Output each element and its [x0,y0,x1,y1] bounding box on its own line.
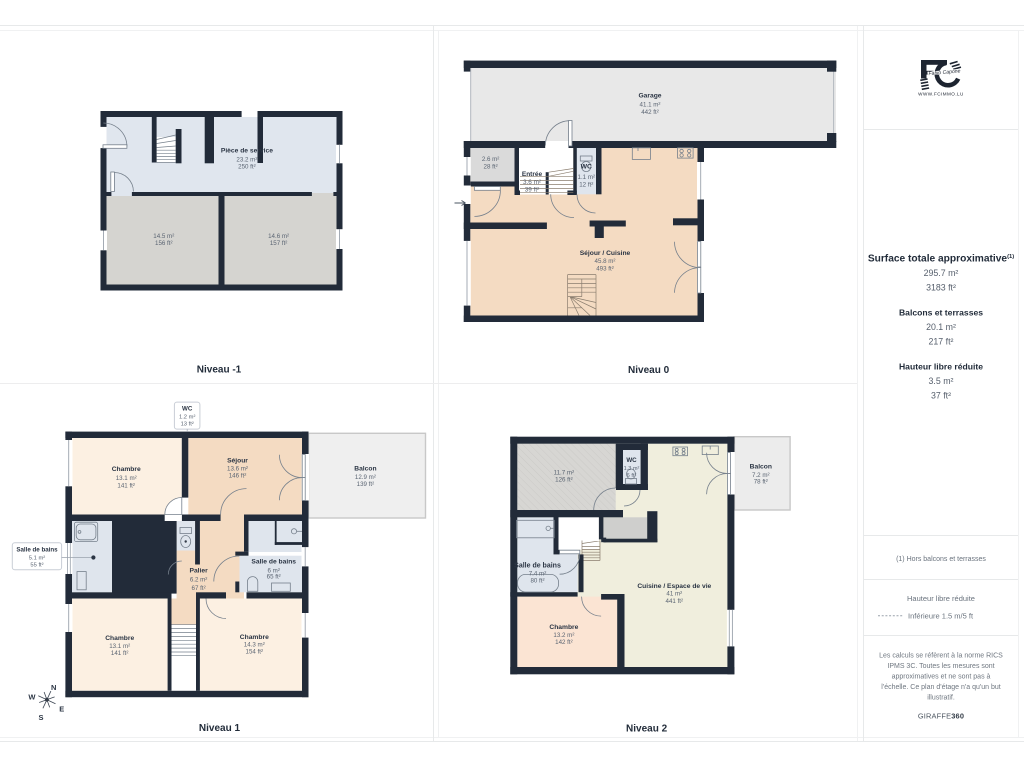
svg-text:14.3 m²: 14.3 m² [244,642,265,649]
svg-text:12 ft²: 12 ft² [579,182,593,189]
svg-text:illustratif.: illustratif. [927,695,955,702]
svg-text:13.6 m²: 13.6 m² [227,466,248,473]
svg-text:142 ft²: 142 ft² [555,639,573,646]
svg-text:Salle de bains: Salle de bains [16,546,58,553]
svg-text:Niveau 2: Niveau 2 [626,723,668,734]
svg-text:55 ft²: 55 ft² [30,562,43,568]
svg-text:Chambre: Chambre [112,466,141,473]
svg-text:Garage: Garage [638,93,661,100]
svg-text:3183 ft²: 3183 ft² [926,282,956,292]
svg-text:WC: WC [581,164,592,171]
svg-text:Balcon: Balcon [354,466,376,473]
svg-text:Palier: Palier [189,568,208,575]
svg-text:156 ft²: 156 ft² [155,240,173,247]
svg-text:78 ft²: 78 ft² [754,478,768,485]
svg-text:41 m²: 41 m² [666,591,682,598]
svg-text:Chambre: Chambre [105,635,134,642]
svg-text:126 ft²: 126 ft² [555,477,573,484]
svg-text:157 ft²: 157 ft² [270,240,288,247]
svg-text:250 ft²: 250 ft² [238,164,256,171]
svg-text:45.8 m²: 45.8 m² [595,258,616,265]
svg-text:Hauteur libre réduite: Hauteur libre réduite [907,594,975,603]
svg-text:Salle de bains: Salle de bains [514,562,561,569]
svg-text:65 ft²: 65 ft² [267,573,281,580]
svg-text:GIRAFFE360: GIRAFFE360 [918,712,964,721]
svg-text:141 ft²: 141 ft² [111,650,129,657]
svg-text:80 ft²: 80 ft² [530,578,544,585]
svg-text:37 ft²: 37 ft² [931,391,951,401]
svg-text:IPMS 3C. Toutes les mesures so: IPMS 3C. Toutes les mesures sont [887,663,994,670]
svg-text:WC: WC [182,406,193,413]
svg-text:146 ft²: 146 ft² [229,473,247,480]
svg-text:Chambre: Chambre [549,624,578,631]
svg-text:Balcon: Balcon [750,464,772,471]
svg-text:6.2 m²: 6.2 m² [190,577,208,584]
svg-text:Cuisine / Espace de vie: Cuisine / Espace de vie [637,583,711,590]
svg-text:6 ft²: 6 ft² [627,473,637,479]
svg-text:139 ft²: 139 ft² [357,481,375,488]
svg-text:7.4 m²: 7.4 m² [529,570,547,577]
svg-text:E: E [59,704,64,713]
svg-text:67 ft²: 67 ft² [192,585,206,592]
svg-text:Niveau 0: Niveau 0 [628,365,670,376]
svg-text:W: W [28,692,36,701]
svg-text:Niveau -1: Niveau -1 [197,365,242,376]
svg-text:Chambre: Chambre [240,634,269,641]
svg-text:39 ft²: 39 ft² [525,187,540,194]
svg-text:3.6 m²: 3.6 m² [523,179,541,186]
svg-text:Séjour / Cuisine: Séjour / Cuisine [580,250,631,257]
svg-text:14.6 m²: 14.6 m² [268,233,289,240]
svg-text:1.3 m²: 1.3 m² [624,466,640,472]
svg-text:14.5 m²: 14.5 m² [153,233,174,240]
svg-text:20.1 m²: 20.1 m² [926,322,956,332]
svg-text:Pièce de service: Pièce de service [221,148,273,155]
svg-text:Surface totale approximative(1: Surface totale approximative(1) [868,253,1014,264]
svg-text:3.5 m²: 3.5 m² [929,376,954,386]
svg-text:1.1 m²: 1.1 m² [578,174,596,181]
svg-text:Salle de bains: Salle de bains [251,559,296,566]
svg-text:(1) Hors balcons et terrasses: (1) Hors balcons et terrasses [896,556,986,563]
svg-text:Entrée: Entrée [522,171,543,178]
svg-text:442 ft²: 442 ft² [641,109,659,116]
svg-text:WC: WC [626,457,637,464]
svg-text:23.2 m²: 23.2 m² [236,157,257,164]
svg-text:Balcons et terrasses: Balcons et terrasses [899,308,983,318]
svg-text:13 ft²: 13 ft² [181,422,194,428]
svg-text:141 ft²: 141 ft² [117,483,135,490]
svg-text:N: N [51,683,56,692]
svg-text:S: S [38,713,43,722]
svg-text:l'échelle. Ce plan d'étage n'a: l'échelle. Ce plan d'étage n'a qu'un but [881,684,1000,691]
svg-text:1.2 m²: 1.2 m² [179,415,195,421]
svg-text:154 ft²: 154 ft² [246,649,264,656]
svg-text:WWW.FCIMMO.LU: WWW.FCIMMO.LU [918,91,964,96]
svg-text:41.1 m²: 41.1 m² [640,102,661,109]
svg-text:Hauteur libre réduite: Hauteur libre réduite [899,362,983,372]
svg-text:2.6 m²: 2.6 m² [482,156,500,163]
svg-text:441 ft²: 441 ft² [666,598,684,605]
svg-text:13.1 m²: 13.1 m² [109,643,130,650]
svg-text:13.1 m²: 13.1 m² [116,475,137,482]
svg-text:28 ft²: 28 ft² [484,164,498,171]
svg-text:Séjour: Séjour [227,458,248,465]
svg-text:11.7 m²: 11.7 m² [554,469,575,476]
svg-text:295.7 m²: 295.7 m² [924,268,959,278]
svg-text:493 ft²: 493 ft² [596,266,614,273]
svg-text:Niveau 1: Niveau 1 [199,723,241,734]
svg-text:approximatives et ne sont pas: approximatives et ne sont pas à [892,674,991,681]
svg-text:5.1 m²: 5.1 m² [29,555,45,561]
svg-text:217 ft²: 217 ft² [929,337,954,347]
svg-text:Les calculs se réfèrent à la n: Les calculs se réfèrent à la norme RICS [879,653,1003,660]
svg-text:Inférieure 1.5 m/5 ft: Inférieure 1.5 m/5 ft [908,611,974,620]
